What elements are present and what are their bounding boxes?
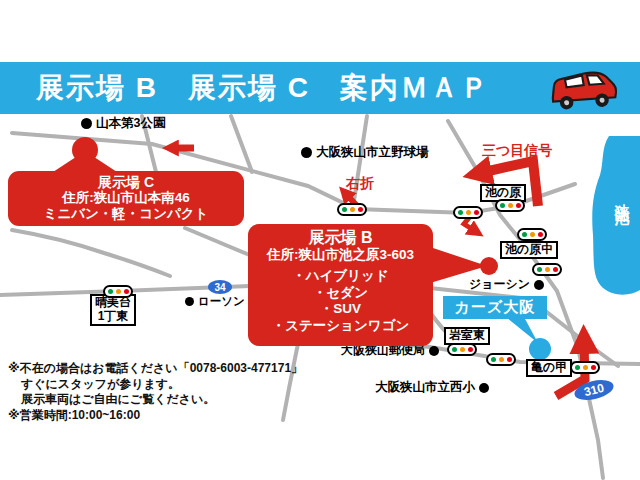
note-line: ※不在の場合はお電話ください「0078-6003-477171」: [8, 361, 303, 377]
label-third-signal: 三つ目信号: [482, 142, 552, 160]
route-badge-34: 34: [208, 280, 232, 294]
traffic-signal-icon: [337, 203, 367, 216]
label-turn-right: 右折: [346, 175, 374, 193]
site-c-marker: [72, 137, 98, 163]
traffic-signal-icon: [453, 206, 483, 219]
footer-notes: ※不在の場合はお電話ください「0078-6003-477171」 すぐにスタッフ…: [8, 361, 303, 423]
traffic-signal-icon: [570, 361, 600, 374]
poi-label: 大阪狭山市立西小: [375, 379, 475, 396]
site-b-type: ・ハイブリッド: [248, 268, 433, 285]
shop-pointer: [506, 317, 538, 343]
site-c-address: 住所:狭山市山本南46: [8, 190, 244, 206]
poi-label: ローソン: [198, 294, 245, 309]
note-line: すぐにスタッフが参ります。: [8, 377, 303, 393]
site-b-marker: [480, 257, 498, 275]
site-b-type: ・セダン: [248, 285, 433, 302]
poi-ballpark: 大阪狭山市立野球場: [301, 144, 429, 161]
poi-elementary-school: 大阪狭山市立西小: [375, 379, 489, 396]
traffic-signal-icon: [103, 285, 133, 298]
site-b-title: 展示場 B: [248, 228, 433, 247]
site-b-address: 住所:狭山市池之原3-603: [248, 247, 433, 263]
shop-name-box: カーズ大阪: [443, 296, 547, 319]
site-b-type: ・SUV: [248, 301, 433, 318]
sign-ikenohara-naka: 池の原中: [500, 241, 558, 259]
traffic-signal-icon: [532, 263, 562, 276]
poi-dot-icon: [479, 383, 489, 393]
traffic-signal-icon: [517, 228, 547, 241]
poi-dot-icon: [429, 346, 439, 356]
page-title: 展示場 B 展示場 C 案内ＭＡＰ: [36, 62, 490, 114]
poi-yamamoto-park: 山本第3公園: [81, 115, 165, 132]
sign-kamenoko: 亀の甲: [526, 359, 572, 377]
poi-joshin: ジョーシン: [469, 276, 544, 293]
site-c-types: ミニバン・軽・コンパクト: [8, 206, 244, 222]
sign-line: 1丁東: [95, 310, 131, 324]
poi-label: 大阪狭山市立野球場: [316, 144, 429, 161]
note-line: 展示車両はご自由にご覧ください。: [8, 392, 303, 408]
callout-site-c: 展示場 C 住所:狭山市山本南46 ミニバン・軽・コンパクト: [8, 171, 244, 226]
site-c-title: 展示場 C: [8, 174, 244, 190]
poi-label: 山本第3公園: [96, 115, 165, 132]
poi-dot-icon: [534, 280, 544, 290]
lake-label: 狭山池: [612, 192, 631, 201]
traffic-signal-icon: [486, 353, 516, 366]
poi-lawson: ローソン: [185, 294, 245, 309]
traffic-signal-icon: [495, 199, 525, 212]
traffic-signal-icon: [447, 343, 477, 356]
site-b-type: ・ステーションワゴン: [248, 318, 433, 335]
sign-line: 晴美台: [95, 296, 131, 310]
poi-dot-icon: [185, 297, 194, 306]
lake-shape: [592, 136, 640, 295]
shop-marker: [529, 338, 551, 360]
car-icon: [542, 62, 623, 115]
map-page: 展示場 B 展示場 C 案内ＭＡＰ 山本第3公園 大阪狭山市立野球場 ローソン …: [0, 0, 640, 480]
poi-label: ジョーシン: [469, 276, 530, 293]
sign-harumidai: 晴美台 1丁東: [90, 294, 136, 326]
callout-site-b: 展示場 B 住所:狭山市池之原3-603 ・ハイブリッド ・セダン ・SUV ・…: [248, 224, 433, 346]
header-banner: 展示場 B 展示場 C 案内ＭＡＰ: [0, 62, 640, 114]
poi-dot-icon: [81, 118, 92, 129]
note-line: ※営業時間:10:00~16:00: [8, 408, 303, 424]
poi-dot-icon: [301, 147, 312, 158]
